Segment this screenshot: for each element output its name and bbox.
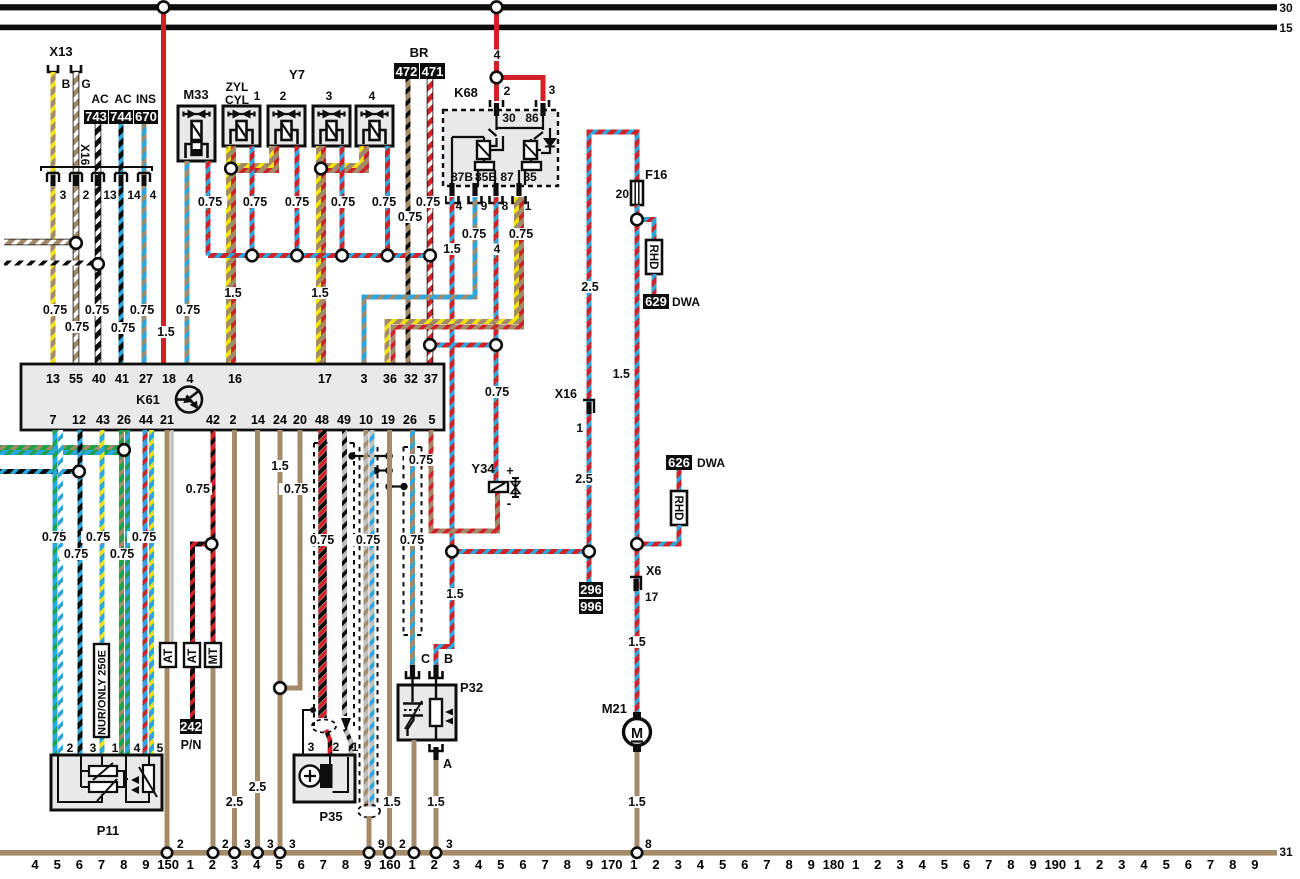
svg-text:170: 170 [601,857,623,872]
svg-text:744: 744 [110,109,132,124]
svg-text:1: 1 [852,857,859,872]
svg-text:472: 472 [396,64,418,79]
svg-text:3: 3 [361,372,368,386]
svg-text:14: 14 [251,413,265,427]
svg-text:3: 3 [896,857,903,872]
svg-text:5: 5 [719,857,726,872]
svg-text:6: 6 [741,857,748,872]
svg-text:10: 10 [359,413,373,427]
svg-text:3: 3 [446,837,453,851]
svg-text:3: 3 [267,837,274,851]
svg-text:85B: 85B [475,170,497,184]
svg-text:0.75: 0.75 [462,227,486,241]
svg-text:24: 24 [273,413,287,427]
svg-text:DWA: DWA [672,295,700,309]
svg-text:0.75: 0.75 [110,547,134,561]
svg-text:0.75: 0.75 [331,195,355,209]
svg-text:P11: P11 [97,823,119,838]
svg-text:1.5: 1.5 [157,325,174,339]
svg-text:1: 1 [352,740,359,754]
svg-text:3: 3 [308,740,315,754]
svg-text:1.5: 1.5 [427,795,444,809]
svg-text:A: A [443,757,452,771]
svg-text:13: 13 [103,188,117,202]
svg-text:9: 9 [1251,857,1258,872]
svg-text:44: 44 [139,413,153,427]
svg-text:4: 4 [369,89,376,103]
svg-text:8: 8 [645,837,652,851]
svg-text:0.75: 0.75 [409,453,433,467]
svg-text:14: 14 [127,188,141,202]
svg-text:190: 190 [1044,857,1066,872]
svg-text:K61: K61 [136,392,160,407]
svg-text:0.75: 0.75 [400,533,424,547]
svg-text:19: 19 [381,413,395,427]
svg-text:DWA: DWA [697,456,725,470]
svg-text:7: 7 [763,857,770,872]
svg-text:48: 48 [315,413,329,427]
svg-text:21: 21 [160,413,174,427]
svg-text:8: 8 [120,857,127,872]
svg-text:9: 9 [1029,857,1036,872]
svg-text:0.75: 0.75 [176,303,200,317]
svg-text:1.5: 1.5 [613,367,630,381]
svg-text:160: 160 [379,857,401,872]
svg-text:40: 40 [92,372,106,386]
svg-text:37: 37 [424,372,438,386]
svg-text:32: 32 [404,372,418,386]
svg-text:1: 1 [408,857,415,872]
svg-text:0.75: 0.75 [85,303,109,317]
svg-text:6: 6 [519,857,526,872]
svg-text:RHD: RHD [647,245,659,270]
svg-text:AC: AC [91,92,109,106]
svg-text:4: 4 [1140,857,1148,872]
svg-text:0.75: 0.75 [372,195,396,209]
svg-text:9: 9 [364,857,371,872]
svg-text:M: M [631,726,643,742]
svg-text:0.75: 0.75 [42,530,66,544]
svg-text:1: 1 [630,857,637,872]
svg-text:8: 8 [1229,857,1236,872]
svg-text:3: 3 [289,837,296,851]
svg-text:87: 87 [500,170,514,184]
svg-text:3: 3 [675,857,682,872]
svg-text:0.75: 0.75 [310,533,334,547]
svg-text:4: 4 [31,857,39,872]
svg-text:7: 7 [50,413,57,427]
svg-text:9: 9 [142,857,149,872]
svg-text:150: 150 [157,857,179,872]
svg-text:0.75: 0.75 [186,482,210,496]
svg-text:2: 2 [230,413,237,427]
svg-text:242: 242 [180,719,202,734]
svg-text:K68: K68 [454,85,478,100]
svg-text:0.75: 0.75 [130,303,154,317]
svg-text:4: 4 [134,741,141,755]
svg-text:2: 2 [83,188,90,202]
svg-text:AT: AT [187,649,199,663]
svg-text:5: 5 [1163,857,1170,872]
svg-text:MT: MT [208,648,220,665]
svg-text:0.75: 0.75 [509,227,533,241]
svg-text:0.75: 0.75 [356,533,380,547]
svg-text:30: 30 [1279,1,1293,15]
svg-text:5: 5 [497,857,504,872]
svg-text:4: 4 [150,188,157,202]
svg-text:5: 5 [429,413,436,427]
svg-text:41: 41 [115,372,129,386]
svg-text:4: 4 [697,857,705,872]
svg-text:0.75: 0.75 [43,303,67,317]
svg-text:2: 2 [209,857,216,872]
svg-text:2.5: 2.5 [575,472,592,486]
svg-text:4: 4 [253,857,261,872]
svg-text:2: 2 [504,84,511,98]
svg-text:0.75: 0.75 [284,482,308,496]
svg-text:3: 3 [326,89,333,103]
svg-text:M21: M21 [602,701,627,716]
svg-text:2: 2 [280,89,287,103]
svg-text:0.75: 0.75 [65,320,89,334]
svg-text:626: 626 [668,455,690,470]
svg-text:X16: X16 [555,387,577,401]
svg-text:C: C [421,652,430,666]
svg-text:6: 6 [76,857,83,872]
svg-text:P/N: P/N [181,738,202,752]
svg-text:1: 1 [525,199,532,213]
svg-text:X13: X13 [49,44,72,59]
svg-text:1.5: 1.5 [443,242,460,256]
svg-text:2: 2 [431,857,438,872]
svg-text:2.5: 2.5 [581,280,598,294]
svg-text:15: 15 [1279,21,1293,35]
svg-text:629: 629 [645,294,667,309]
svg-text:2: 2 [874,857,881,872]
svg-text:0.75: 0.75 [86,530,110,544]
svg-text:2: 2 [67,741,74,755]
svg-text:AC: AC [114,92,132,106]
svg-text:13: 13 [46,372,60,386]
svg-text:X16: X16 [78,144,92,166]
svg-text:20: 20 [293,413,307,427]
svg-text:1: 1 [112,741,119,755]
svg-text:8: 8 [1007,857,1014,872]
svg-text:7: 7 [985,857,992,872]
svg-text:2.5: 2.5 [226,795,243,809]
svg-text:M33: M33 [183,87,208,102]
svg-text:+: + [506,464,513,478]
svg-text:27: 27 [139,372,153,386]
svg-text:17: 17 [318,372,332,386]
svg-text:3: 3 [244,837,251,851]
svg-text:1.5: 1.5 [383,795,400,809]
svg-text:2: 2 [222,837,229,851]
svg-text:1.5: 1.5 [311,286,328,300]
svg-text:26: 26 [403,413,417,427]
svg-text:9: 9 [808,857,815,872]
svg-text:0.75: 0.75 [243,195,267,209]
svg-text:BR: BR [410,45,429,60]
svg-text:3: 3 [453,857,460,872]
svg-text:B: B [62,77,71,91]
svg-text:0.75: 0.75 [398,210,422,224]
svg-text:4: 4 [187,372,194,386]
svg-text:4: 4 [919,857,927,872]
svg-text:ZYL: ZYL [226,80,249,94]
svg-text:0.75: 0.75 [416,195,440,209]
svg-text:42: 42 [206,413,220,427]
svg-text:-: - [507,495,512,511]
svg-text:0.75: 0.75 [64,547,88,561]
svg-text:85: 85 [523,170,537,184]
svg-text:2: 2 [652,857,659,872]
svg-text:4: 4 [456,199,463,213]
svg-text:P35: P35 [319,809,342,824]
svg-text:X6: X6 [646,564,661,578]
svg-text:2: 2 [1096,857,1103,872]
svg-text:AT: AT [163,649,175,663]
svg-text:3: 3 [549,83,556,97]
svg-text:2.5: 2.5 [249,780,266,794]
svg-text:2: 2 [333,740,340,754]
svg-text:4: 4 [494,242,501,256]
svg-text:0.75: 0.75 [485,385,509,399]
svg-text:8: 8 [785,857,792,872]
svg-text:5: 5 [275,857,282,872]
svg-text:49: 49 [337,413,351,427]
svg-text:5: 5 [941,857,948,872]
svg-text:4: 4 [494,48,501,62]
svg-text:86: 86 [525,111,539,125]
svg-text:5: 5 [157,741,164,755]
svg-text:5: 5 [54,857,61,872]
svg-text:4: 4 [475,857,483,872]
svg-text:0.75: 0.75 [285,195,309,209]
svg-text:9: 9 [586,857,593,872]
svg-text:1.5: 1.5 [628,635,645,649]
svg-text:16: 16 [228,372,242,386]
svg-text:17: 17 [645,590,659,604]
svg-text:670: 670 [135,109,157,124]
svg-text:2: 2 [399,837,406,851]
svg-text:31: 31 [1279,845,1293,859]
svg-text:B: B [444,652,453,666]
svg-text:12: 12 [72,413,86,427]
svg-text:3: 3 [231,857,238,872]
svg-text:36: 36 [383,372,397,386]
svg-text:F16: F16 [645,167,667,182]
svg-text:G: G [81,77,90,91]
svg-text:RHD: RHD [672,496,684,521]
svg-text:55: 55 [69,372,83,386]
svg-text:87B: 87B [451,170,473,184]
svg-text:0.75: 0.75 [198,195,222,209]
svg-text:996: 996 [580,599,602,614]
svg-text:3: 3 [60,188,67,202]
svg-text:30: 30 [502,111,516,125]
svg-text:7: 7 [541,857,548,872]
svg-text:20: 20 [616,187,630,201]
svg-text:1.5: 1.5 [628,795,645,809]
svg-text:1: 1 [1074,857,1081,872]
svg-text:9: 9 [481,199,488,213]
svg-text:180: 180 [823,857,845,872]
svg-text:8: 8 [342,857,349,872]
svg-text:8: 8 [502,199,509,213]
svg-text:9: 9 [378,837,385,851]
svg-text:471: 471 [422,64,444,79]
svg-text:INS: INS [136,92,156,106]
svg-text:1: 1 [254,89,261,103]
svg-text:0.75: 0.75 [132,530,156,544]
svg-text:Y34: Y34 [471,461,495,476]
svg-text:P32: P32 [460,680,483,695]
svg-text:6: 6 [963,857,970,872]
svg-text:1.5: 1.5 [224,286,241,300]
svg-text:Y7: Y7 [289,67,305,82]
svg-text:1: 1 [576,421,583,435]
svg-text:3: 3 [1118,857,1125,872]
svg-text:26: 26 [117,413,131,427]
svg-text:8: 8 [564,857,571,872]
svg-text:743: 743 [85,109,107,124]
svg-text:296: 296 [580,582,602,597]
svg-text:2: 2 [177,837,184,851]
svg-text:NUR/ONLY 250E: NUR/ONLY 250E [97,650,109,735]
svg-text:6: 6 [1185,857,1192,872]
svg-text:1: 1 [187,857,194,872]
svg-text:1.5: 1.5 [271,459,288,473]
svg-text:7: 7 [98,857,105,872]
svg-text:7: 7 [320,857,327,872]
svg-text:6: 6 [298,857,305,872]
svg-text:43: 43 [96,413,110,427]
svg-text:CYL: CYL [225,93,249,107]
svg-text:0.75: 0.75 [111,321,135,335]
svg-text:7: 7 [1207,857,1214,872]
svg-text:1.5: 1.5 [446,587,463,601]
svg-text:3: 3 [90,741,97,755]
svg-text:18: 18 [162,372,176,386]
